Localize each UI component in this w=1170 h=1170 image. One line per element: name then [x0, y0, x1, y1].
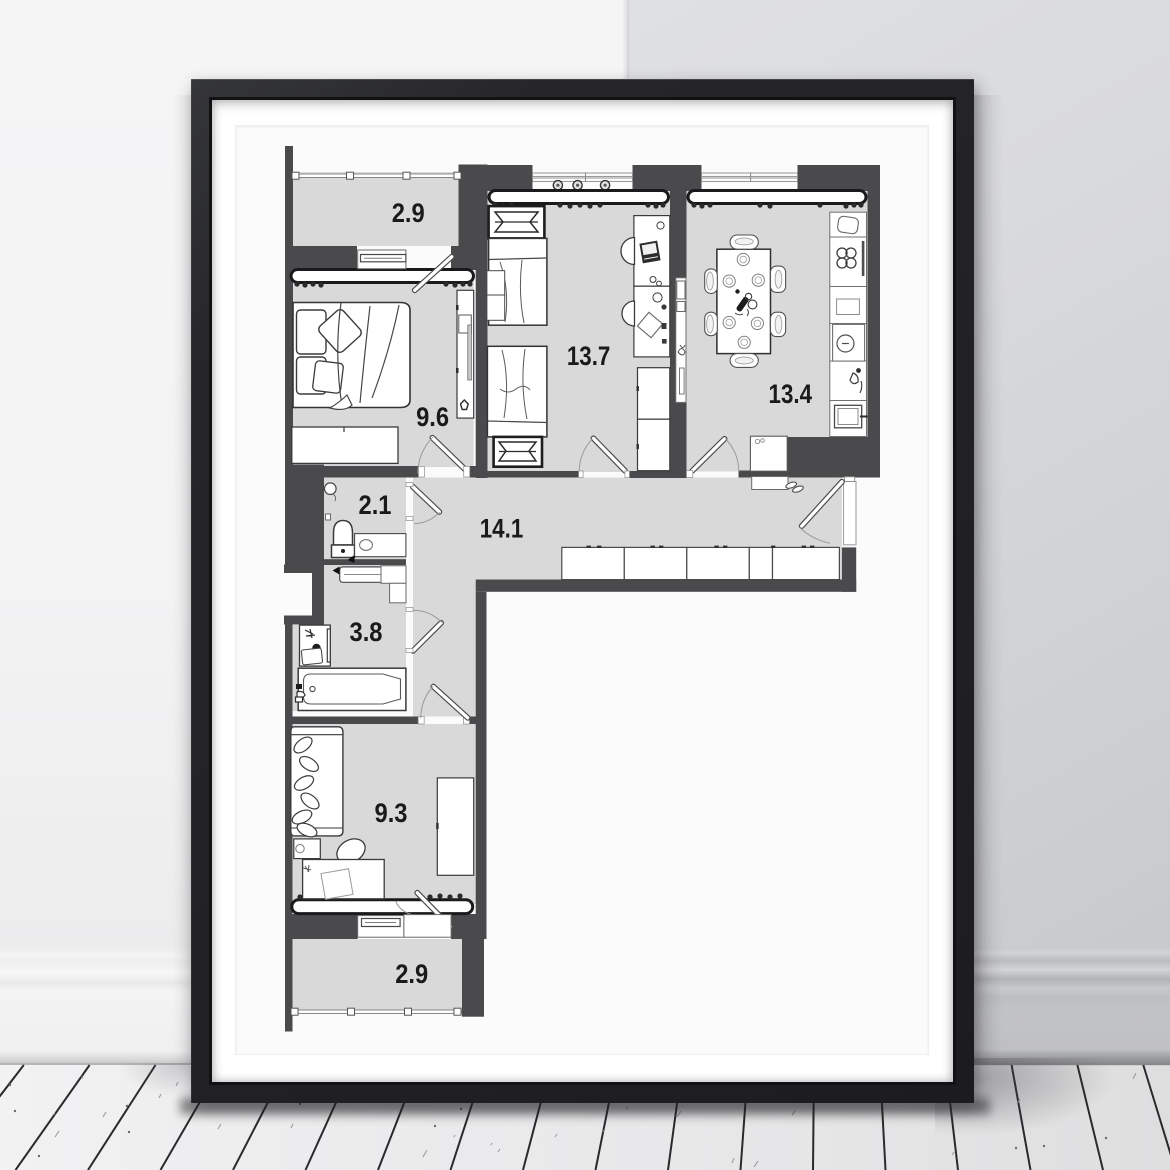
svg-text:14.1: 14.1	[480, 514, 524, 544]
svg-text:13.7: 13.7	[567, 341, 611, 371]
svg-text:9.3: 9.3	[375, 798, 408, 828]
svg-text:3.8: 3.8	[350, 617, 383, 647]
svg-text:2.9: 2.9	[395, 959, 428, 989]
svg-text:9.6: 9.6	[416, 402, 449, 432]
svg-text:2.9: 2.9	[392, 198, 425, 228]
svg-text:2.1: 2.1	[359, 490, 392, 520]
svg-text:13.4: 13.4	[769, 379, 813, 409]
